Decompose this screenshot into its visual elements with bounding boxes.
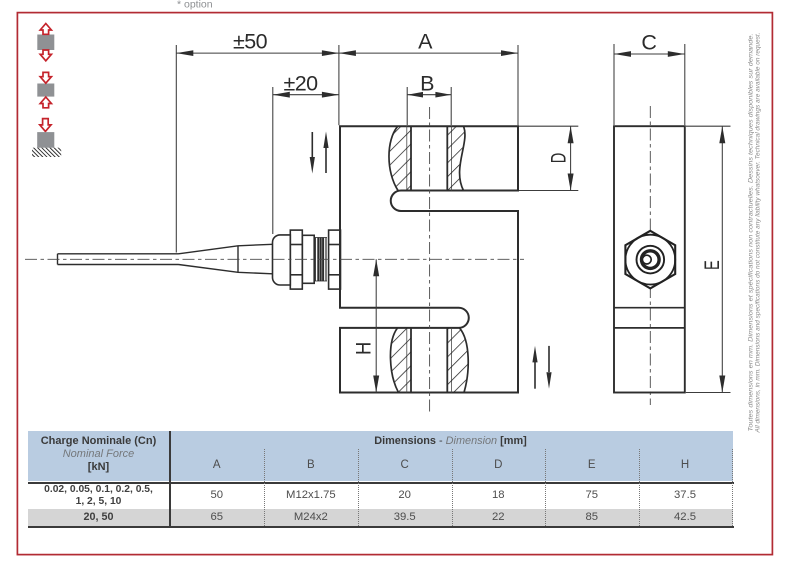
svg-text:±20: ±20 — [284, 72, 319, 96]
svg-text:* option: * option — [177, 0, 213, 11]
svg-text:D: D — [546, 153, 571, 163]
svg-text:A: A — [418, 30, 433, 54]
svg-text:B: B — [420, 72, 434, 96]
svg-text:E: E — [699, 260, 724, 270]
svg-text:H: H — [352, 342, 376, 355]
svg-text:All dimensions, in mm. Dimensi: All dimensions, in mm. Dimensions and sp… — [754, 33, 761, 434]
svg-text:C: C — [641, 31, 656, 55]
svg-text:±50: ±50 — [233, 30, 268, 54]
